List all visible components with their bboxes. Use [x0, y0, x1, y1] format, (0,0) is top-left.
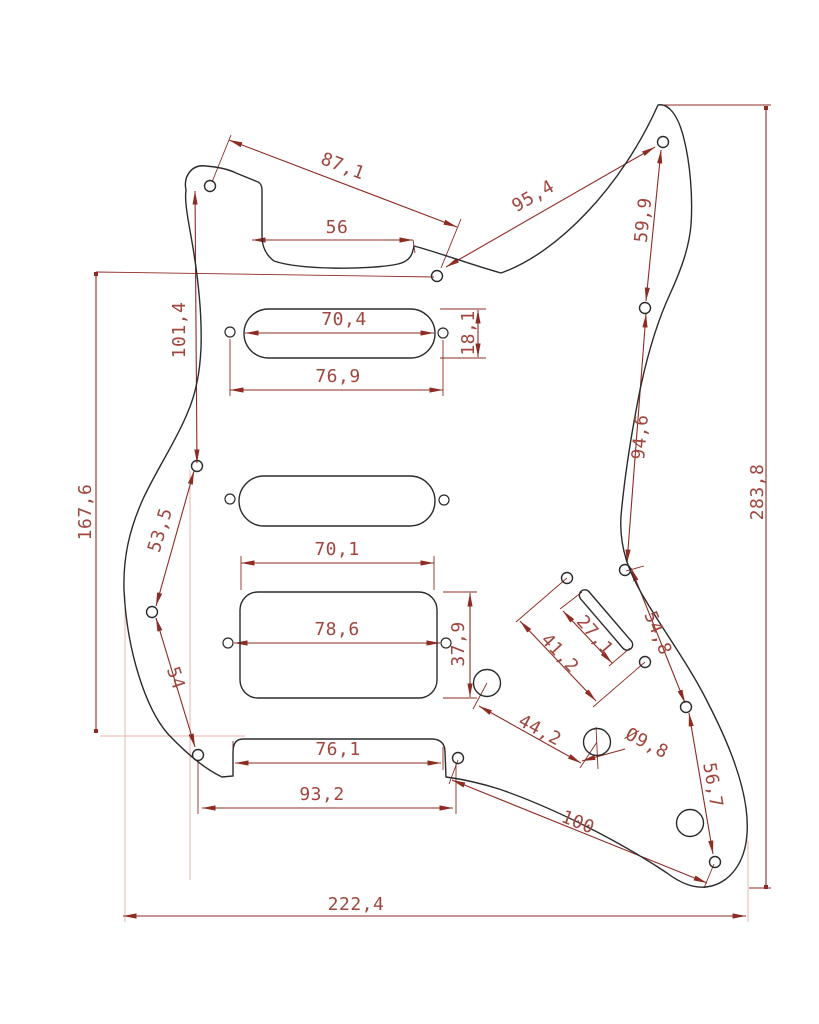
screw-hole — [147, 607, 158, 618]
extension-lines — [96, 105, 771, 888]
pickup-mount-hole — [438, 328, 448, 338]
screw-hole — [640, 303, 651, 314]
screw-hole — [432, 271, 443, 282]
screw-hole — [710, 857, 721, 868]
screw-hole — [658, 137, 669, 148]
screw-hole — [453, 753, 464, 764]
extension-line — [596, 727, 598, 769]
dim-label-95-4: 95,4 — [508, 176, 558, 217]
dimension-line — [446, 147, 655, 267]
screw-hole — [205, 181, 216, 192]
dim-label-56: 56 — [326, 217, 349, 238]
drawing-svg: 87,15695,459,9101,4167,670,418,176,953,5… — [0, 0, 819, 1024]
pickup-mount-hole — [225, 494, 235, 504]
dim-label-101-4: 101,4 — [169, 302, 190, 359]
dim-label-94-6: 94,6 — [628, 414, 653, 461]
dimension-end-dot — [764, 106, 768, 110]
dim-label-37-9: 37,9 — [448, 621, 469, 666]
potentiometer-hole — [677, 810, 704, 837]
pickup-mount-hole — [439, 495, 449, 505]
dim-label-76-9: 76,9 — [315, 366, 360, 387]
dim-label-56-7: 56,7 — [698, 761, 727, 809]
dim-label-27-1: 27,1 — [572, 611, 618, 659]
aux-lines — [100, 470, 748, 922]
extension-line — [516, 578, 567, 622]
dim-label-222-4: 222,4 — [328, 894, 385, 915]
dim-label-54-8: 54,8 — [639, 608, 675, 658]
dimension-end-dot — [94, 729, 98, 733]
dimension-end-dot — [764, 885, 768, 889]
dim-label-70-4: 70,4 — [321, 309, 366, 330]
dim-label-78-6: 78,6 — [314, 619, 359, 640]
dim-label-44-2: 44,2 — [515, 711, 565, 751]
dimension-line — [195, 191, 197, 463]
middle-pickup-cutout — [239, 476, 435, 526]
potentiometer-holes — [474, 670, 704, 837]
pickup-mount-hole — [223, 638, 233, 648]
dim-label-76-1: 76,1 — [315, 739, 360, 760]
dim-label-283-8: 283,8 — [747, 464, 768, 521]
pickup-mount-hole — [225, 327, 235, 337]
dimension-labels: 87,15695,459,9101,4167,670,418,176,953,5… — [75, 149, 768, 915]
dim-label-41-2: 41,2 — [536, 630, 582, 677]
dim-label-54: 54 — [162, 664, 189, 692]
dimension-line — [229, 140, 457, 227]
screw-hole — [193, 750, 204, 761]
dim-label-70-1: 70,1 — [314, 539, 359, 560]
dim-label-87-1: 87,1 — [318, 149, 368, 185]
dim-label-167-6: 167,6 — [75, 484, 96, 541]
dim-label-dia-9-8: Ø9,8 — [622, 724, 672, 763]
extension-line — [593, 662, 645, 707]
dimension-lines — [96, 108, 766, 916]
extension-line — [212, 135, 231, 182]
bridge-humbucker-cutout — [240, 592, 437, 698]
dim-label-18-1: 18,1 — [458, 310, 479, 355]
dim-label-93-2: 93,2 — [299, 784, 344, 805]
pickguard-technical-drawing: 87,15695,459,9101,4167,670,418,176,953,5… — [0, 0, 819, 1024]
screw-hole — [681, 702, 692, 713]
extension-line — [96, 272, 434, 277]
dimension-end-dot — [94, 272, 98, 276]
dim-label-100: 100 — [558, 806, 597, 838]
